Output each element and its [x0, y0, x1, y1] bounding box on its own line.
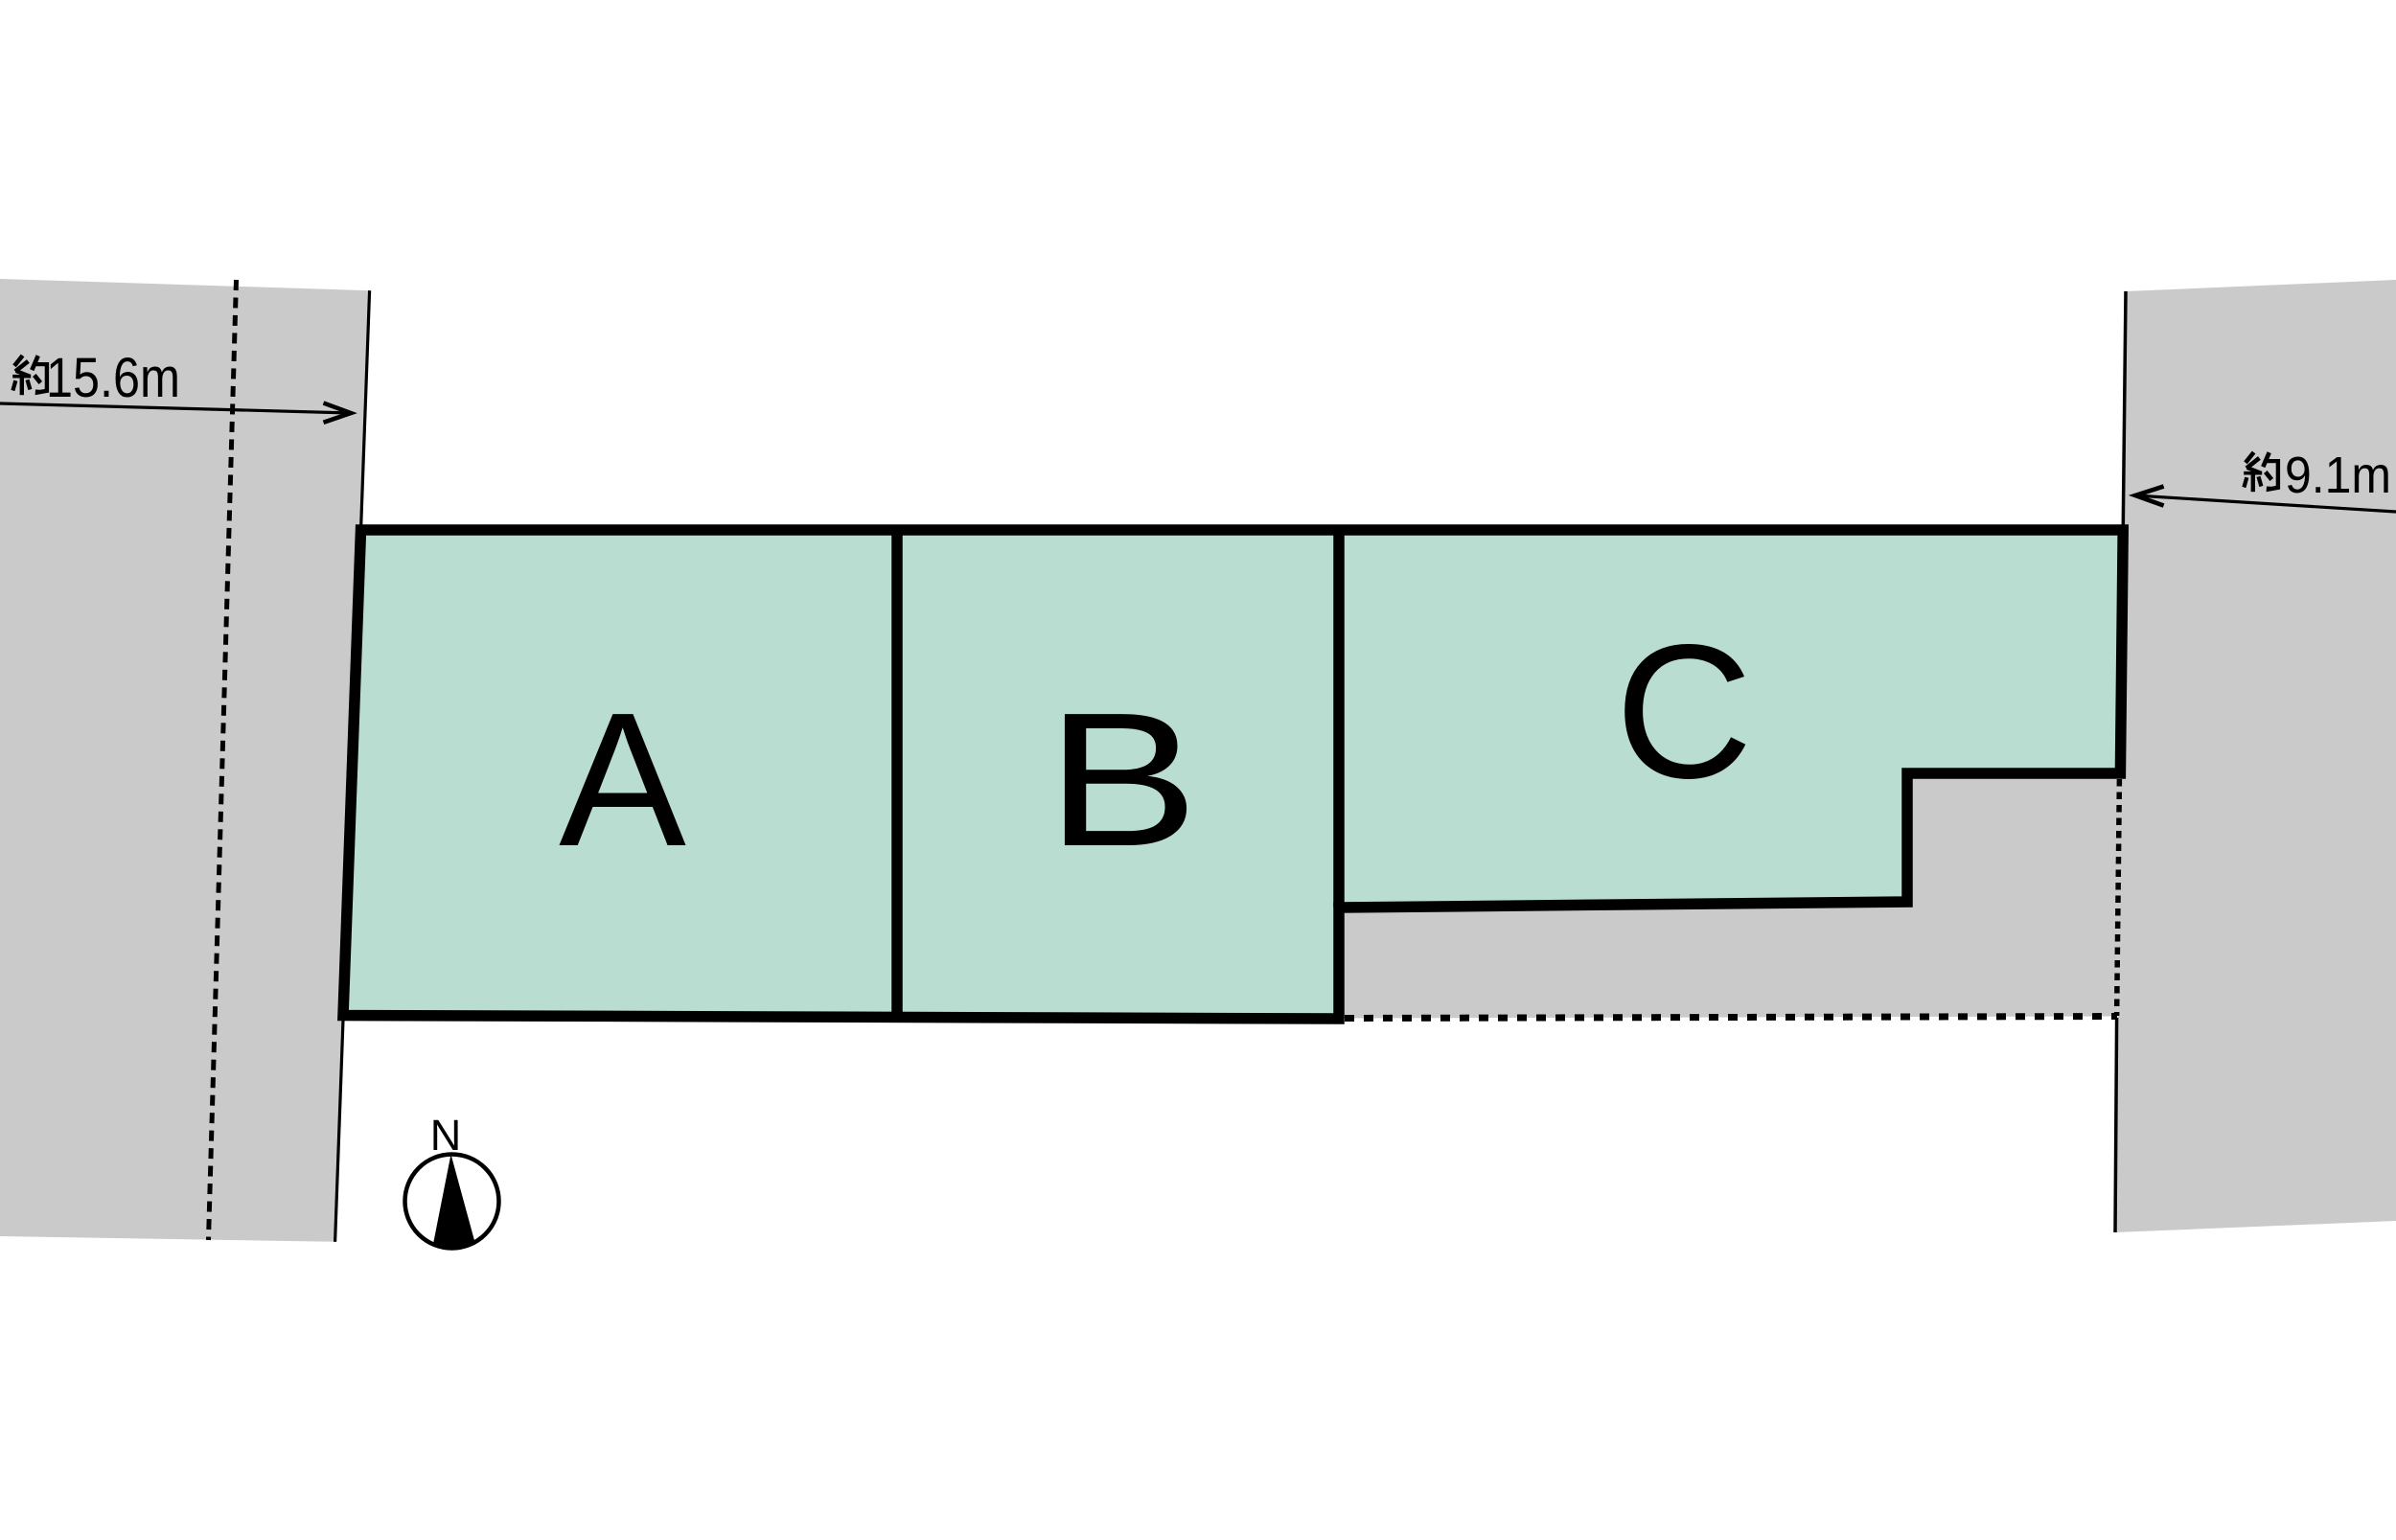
svg-text:A: A: [559, 674, 686, 886]
svg-text:B: B: [1046, 673, 1198, 886]
svg-text:N: N: [430, 1111, 462, 1160]
svg-text:C: C: [1615, 606, 1753, 818]
svg-text:15.6m: 15.6m: [46, 347, 180, 409]
svg-text:9.1m: 9.1m: [2285, 447, 2391, 504]
